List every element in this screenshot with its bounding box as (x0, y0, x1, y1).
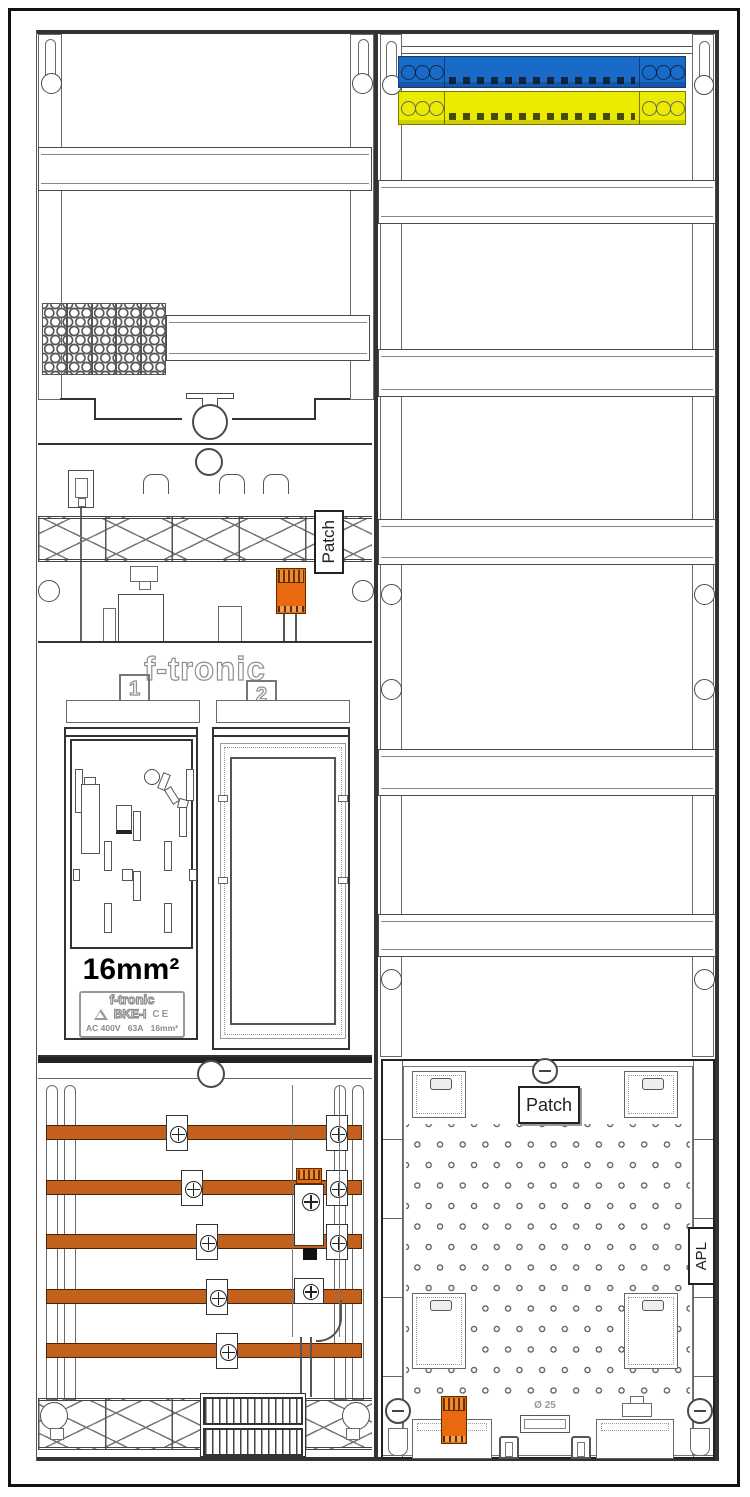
cable-clamp (143, 474, 169, 494)
bracket-inner (577, 1442, 585, 1457)
screw-icon (220, 1344, 237, 1361)
rj45-plug (68, 470, 94, 508)
terminal-module (141, 303, 166, 375)
plate-slot (164, 841, 172, 871)
latch-slot (694, 1410, 706, 1412)
meter-module-2 (212, 727, 350, 1050)
terminal-comb (200, 1393, 306, 1457)
ce-mark: CE (152, 1009, 170, 1020)
connector-hatch (443, 1398, 465, 1411)
screw-head-icon (144, 769, 160, 785)
connector-teeth (443, 1436, 465, 1442)
cable-clip-base (622, 1403, 652, 1417)
patch-label-right-text: Patch (526, 1095, 572, 1116)
nameplate-voltage: AC 400V (86, 1023, 121, 1033)
small-connector-tab (139, 581, 151, 590)
rail-hole (381, 969, 402, 990)
cross-section-label: 16mm² (66, 953, 196, 987)
connector-teeth (278, 606, 304, 612)
corner-clip (346, 1428, 360, 1440)
busbar-shadow (399, 82, 685, 87)
mount-cutout (412, 1071, 466, 1118)
cutout-handle (430, 1078, 452, 1090)
screw-icon (200, 1235, 217, 1252)
rail-hole (41, 73, 62, 94)
mount-cutout (624, 1071, 678, 1118)
corner-latch (687, 1398, 713, 1424)
cable-knockout (197, 1060, 225, 1088)
busbar-carrier (402, 46, 692, 54)
nameplate-cross-section: 16mm² (151, 1023, 178, 1033)
module-top-band (66, 729, 196, 737)
cabinet-center-divider (374, 30, 378, 1461)
profile-step (94, 398, 96, 420)
busbar-clamp (166, 1115, 188, 1151)
conduit-diameter-label: Ø 25 (517, 1400, 573, 1414)
orange-tap-connector (296, 1168, 322, 1184)
corner-hole (342, 1402, 370, 1430)
module-top-band (214, 729, 348, 737)
terminal-hole (429, 65, 444, 80)
f-tronic-logo-icon (94, 1009, 108, 1020)
terminal-row (203, 1428, 303, 1456)
bracket-inner (505, 1442, 513, 1457)
mount-cutout-tall (412, 1293, 466, 1369)
copper-busbar-5 (46, 1343, 362, 1358)
busbar-clamp (181, 1170, 203, 1206)
terminal-hole (642, 65, 657, 80)
cutout-handle (430, 1300, 452, 1311)
din-rail-band (38, 147, 372, 191)
cable-clamp (219, 474, 245, 494)
terminal-din-rail (166, 315, 370, 361)
rail-hole (352, 580, 374, 602)
field-divider (38, 641, 372, 643)
window-tab (338, 877, 348, 884)
rail-hole (381, 679, 402, 700)
din-rail-band (378, 519, 716, 565)
corner-clip (50, 1428, 64, 1440)
terminal-block-cluster (42, 303, 166, 375)
plate-slot (122, 869, 133, 881)
corner-foot (388, 1428, 408, 1456)
patch-label-right: Patch (518, 1086, 580, 1124)
knockout-dashed-edge (601, 1423, 669, 1431)
orange-terminal-connector (441, 1396, 467, 1444)
cabinet-left-edge (36, 30, 37, 1461)
plate-slot (133, 811, 141, 841)
terminal-hole (656, 101, 671, 116)
device-wire (310, 1337, 312, 1397)
window-tab (218, 877, 228, 884)
meter-module-1: 16mm² f-tronic BKE-I CE AC 400V 63A 16mm… (64, 727, 198, 1040)
neutral-busbar-blue (398, 56, 686, 88)
nameplate: f-tronic BKE-I CE AC 400V 63A 16mm² (79, 991, 185, 1038)
latch-slot (539, 1070, 551, 1072)
profile-step (232, 418, 316, 420)
terminal-hole (670, 101, 685, 116)
device-wire (300, 1337, 302, 1397)
field-divider (38, 443, 372, 445)
terminal-hole (415, 101, 430, 116)
window-opening (230, 757, 336, 1025)
cable-clamp (263, 474, 289, 494)
terminal-hole (642, 101, 657, 116)
entry-bracket (499, 1436, 519, 1459)
window-tab (218, 795, 228, 802)
din-rail-band (378, 349, 716, 397)
plug-body (75, 478, 88, 498)
terminal-hole (656, 65, 671, 80)
terminal-module (92, 303, 117, 375)
cable-knockout (192, 404, 228, 440)
pe-busbar-yellow (398, 91, 686, 125)
terminal-slots (449, 113, 635, 120)
bke-plate (70, 739, 193, 949)
terminal-module (42, 303, 67, 375)
rail-hole (694, 584, 715, 605)
busbar-clamp (216, 1333, 238, 1369)
entry-bracket (571, 1436, 591, 1459)
din-clip (303, 1248, 317, 1260)
device-body (294, 1184, 324, 1246)
rail-hole (694, 969, 715, 990)
connector-wire (283, 614, 285, 642)
plug-latch (78, 498, 86, 507)
terminal-hole (401, 101, 416, 116)
field-number-1-text: 1 (129, 678, 140, 701)
profile-step (96, 418, 182, 420)
orange-terminal-connector (276, 568, 306, 614)
screw-icon (303, 1284, 319, 1300)
label-strip (66, 700, 200, 723)
label-strip (216, 700, 350, 723)
profile-step (314, 398, 350, 400)
plate-slot (73, 869, 80, 881)
busbar-clamp (206, 1279, 228, 1315)
plate-slot (164, 903, 172, 933)
profile-step (314, 398, 316, 420)
latch-slot (392, 1410, 404, 1412)
window-tab (338, 795, 348, 802)
mount-post (103, 608, 116, 642)
din-rail-band (378, 914, 716, 957)
terminal-module (116, 303, 141, 375)
nameplate-current: 63A (128, 1023, 144, 1033)
screw-icon (170, 1126, 187, 1143)
nameplate-brand: f-tronic (81, 993, 183, 1007)
din-rail-band (378, 180, 716, 224)
cable-knockout (195, 448, 223, 476)
terminal-hole (401, 65, 416, 80)
screw-icon (185, 1181, 202, 1198)
rail-hole (38, 580, 60, 602)
small-connector (130, 566, 158, 582)
plate-slot (133, 871, 141, 901)
conduit-grommet (520, 1415, 570, 1433)
terminal-module (67, 303, 92, 375)
profile-step (60, 398, 96, 400)
rail-hole (694, 75, 714, 95)
bottom-knockout (596, 1419, 674, 1459)
busbar-shadow (399, 120, 685, 124)
din-rail-band (378, 749, 716, 796)
corner-hole (40, 1402, 68, 1430)
apl-label-text: APL (693, 1242, 710, 1270)
patch-label-left: Patch (314, 510, 344, 574)
junction-box (218, 606, 242, 642)
junction-box (118, 594, 164, 642)
cutout-handle (642, 1300, 664, 1311)
terminal-hole (429, 101, 444, 116)
connector-hatch (298, 1170, 320, 1180)
apl-label: APL (688, 1227, 715, 1285)
rail-hole (381, 584, 402, 605)
plate-slot (116, 805, 132, 834)
corner-foot (690, 1428, 710, 1456)
screw-icon (302, 1193, 320, 1211)
nameplate-model: BKE-I (114, 1007, 147, 1021)
connector-hatch (278, 570, 304, 583)
screw-icon (210, 1290, 227, 1307)
meter-cabinet-diagram: Patch f-tronic 1 2 (0, 0, 750, 1497)
terminal-row (203, 1397, 303, 1425)
patch-label-left-text: Patch (319, 520, 339, 563)
plate-slot (189, 869, 197, 881)
plate-slot (81, 784, 100, 854)
plate-slot (104, 903, 112, 933)
rail-hole (694, 679, 715, 700)
plate-slot (186, 769, 194, 801)
connector-wire (295, 614, 297, 642)
terminal-hole (415, 65, 430, 80)
busbar-clamp (196, 1224, 218, 1260)
mount-cutout-tall (624, 1293, 678, 1369)
rail-hole (352, 73, 373, 94)
plate-slot (104, 841, 112, 871)
grommet-inner (524, 1419, 566, 1429)
corner-latch (385, 1398, 411, 1424)
latch-knob (532, 1058, 558, 1084)
terminal-hole (670, 65, 685, 80)
cabinet-right-edge (715, 30, 719, 1461)
cutout-handle (642, 1078, 664, 1090)
plate-slot (179, 807, 187, 837)
